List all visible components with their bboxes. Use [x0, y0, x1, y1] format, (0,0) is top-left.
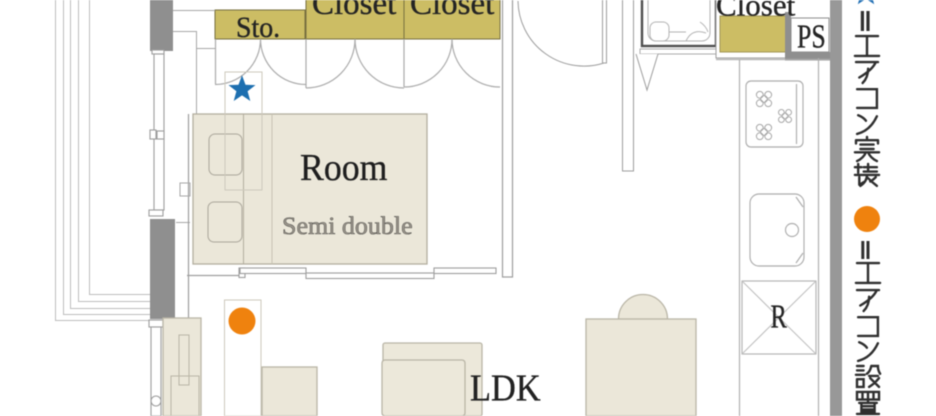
svg-text:Room: Room	[300, 147, 388, 189]
svg-text:Closet: Closet	[716, 0, 796, 23]
svg-text:PS: PS	[797, 17, 826, 55]
svg-text:R: R	[771, 299, 788, 336]
svg-text:Sto.: Sto.	[236, 11, 280, 44]
svg-text:Closet: Closet	[312, 0, 396, 22]
svg-text:Closet: Closet	[410, 0, 494, 22]
svg-text:Semi double: Semi double	[282, 211, 413, 239]
svg-text:LDK: LDK	[470, 367, 541, 409]
